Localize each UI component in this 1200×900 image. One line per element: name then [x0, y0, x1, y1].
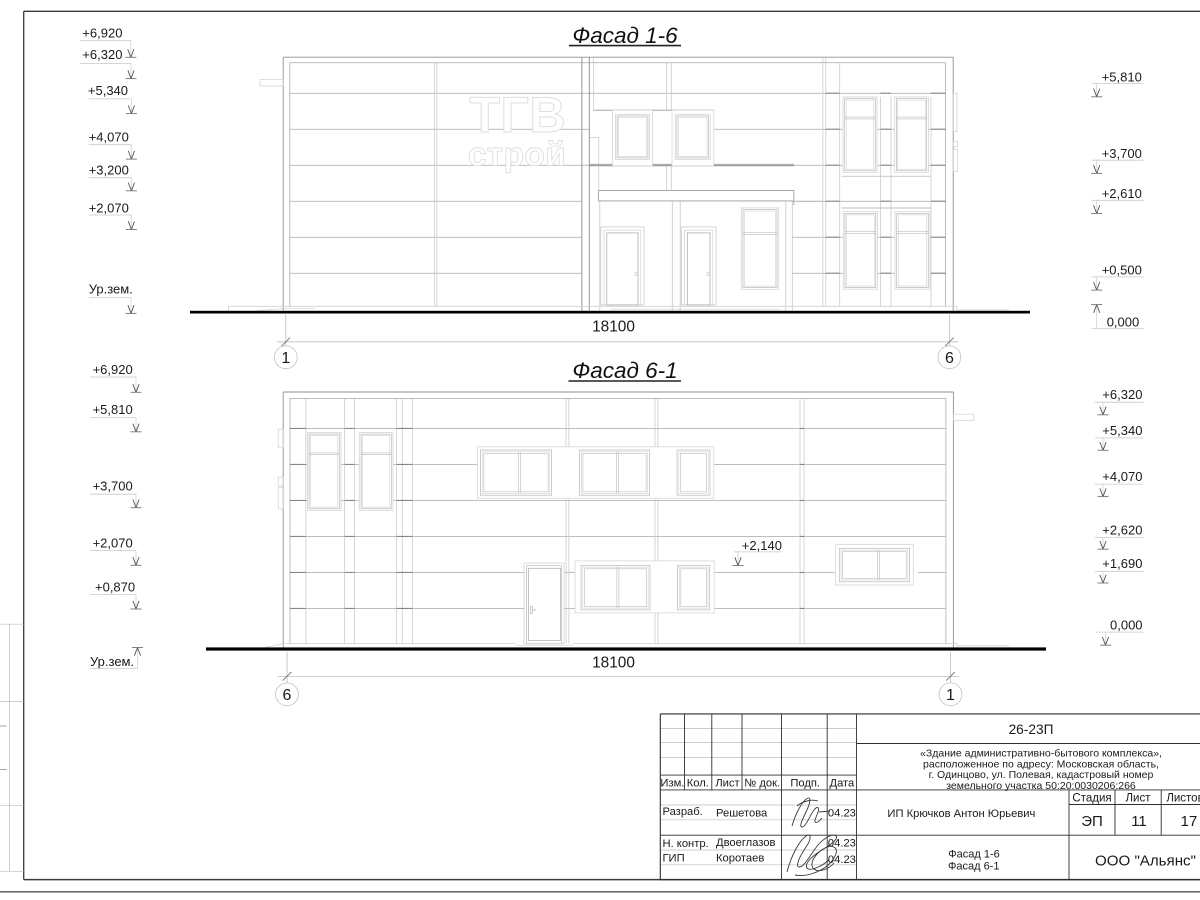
svg-text:Ур.зем.: Ур.зем. [89, 282, 133, 297]
svg-text:+6,920: +6,920 [82, 26, 122, 41]
svg-text:ТГВ: ТГВ [470, 87, 567, 143]
svg-text:Изм.: Изм. [660, 777, 684, 789]
svg-text:+5,810: +5,810 [93, 402, 133, 417]
svg-text:+4,070: +4,070 [89, 130, 129, 145]
svg-text:+5,340: +5,340 [88, 83, 128, 98]
svg-text:Фасад 6-1: Фасад 6-1 [572, 358, 677, 383]
svg-text:+6,320: +6,320 [1102, 387, 1142, 402]
svg-text:04.23: 04.23 [828, 854, 856, 866]
svg-text:+3,200: +3,200 [89, 163, 129, 178]
svg-text:11: 11 [1131, 813, 1147, 830]
svg-text:Лист: Лист [715, 777, 739, 789]
svg-text:Ур.зем.: Ур.зем. [90, 654, 134, 669]
svg-text:+5,340: +5,340 [1102, 423, 1142, 438]
svg-text:+0,500: +0,500 [1102, 263, 1142, 278]
svg-text:+2,070: +2,070 [89, 201, 129, 216]
svg-text:1: 1 [946, 687, 955, 704]
svg-text:земельного участка 50:20:00302: земельного участка 50:20:0030206:266 [946, 780, 1136, 792]
svg-text:+3,700: +3,700 [93, 479, 133, 494]
svg-text:ГИП: ГИП [663, 852, 685, 864]
svg-text:+6,920: +6,920 [93, 362, 133, 377]
svg-text:Дата: Дата [830, 777, 856, 789]
svg-text:26-23П: 26-23П [1009, 722, 1054, 737]
svg-text:0,000: 0,000 [1110, 617, 1143, 632]
svg-text:Н. контр.: Н. контр. [663, 838, 709, 850]
svg-text:+2,140: +2,140 [742, 538, 782, 553]
svg-text:+2,620: +2,620 [1102, 522, 1142, 537]
svg-text:ИП Крючков Антон Юрьевич: ИП Крючков Антон Юрьевич [887, 808, 1035, 820]
svg-text:+0,870: +0,870 [95, 579, 135, 594]
svg-text:Разраб.: Разраб. [663, 806, 703, 818]
svg-text:+5,810: +5,810 [1102, 69, 1142, 84]
svg-text:Фасад 6-1: Фасад 6-1 [948, 860, 999, 872]
svg-text:ООО "Альянс": ООО "Альянс" [1095, 852, 1196, 869]
svg-text:Фасад 1-6: Фасад 1-6 [572, 23, 678, 48]
svg-text:+2,070: +2,070 [93, 535, 133, 550]
svg-text:Лист: Лист [1126, 793, 1152, 805]
svg-text:+2,610: +2,610 [1102, 186, 1142, 201]
svg-text:0,000: 0,000 [1107, 314, 1140, 329]
svg-text:ЭП: ЭП [1081, 813, 1103, 830]
svg-text:Листов: Листов [1166, 793, 1200, 805]
svg-text:6: 6 [945, 350, 954, 367]
svg-text:+6,320: +6,320 [82, 47, 122, 62]
svg-text:+4,070: +4,070 [1102, 469, 1142, 484]
svg-text:+1,690: +1,690 [1102, 556, 1142, 571]
svg-text:Двоеглазов: Двоеглазов [716, 837, 776, 849]
svg-text:строй: строй [468, 136, 566, 173]
svg-text:Коротаев: Коротаев [716, 852, 764, 864]
svg-text:+3,700: +3,700 [1102, 146, 1142, 161]
svg-text:Фасад 1-6: Фасад 1-6 [948, 849, 999, 861]
svg-text:17: 17 [1181, 813, 1198, 830]
svg-text:Подп.: Подп. [790, 777, 820, 789]
svg-text:Кол.: Кол. [687, 777, 709, 789]
svg-text:1: 1 [281, 350, 290, 367]
svg-text:№ док.: № док. [744, 777, 780, 789]
svg-text:04.23: 04.23 [828, 808, 856, 820]
svg-text:Решетова: Решетова [716, 808, 768, 820]
svg-text:18100: 18100 [592, 319, 635, 336]
svg-text:Стадия: Стадия [1072, 793, 1111, 805]
svg-text:18100: 18100 [592, 655, 635, 672]
svg-text:6: 6 [283, 687, 292, 704]
